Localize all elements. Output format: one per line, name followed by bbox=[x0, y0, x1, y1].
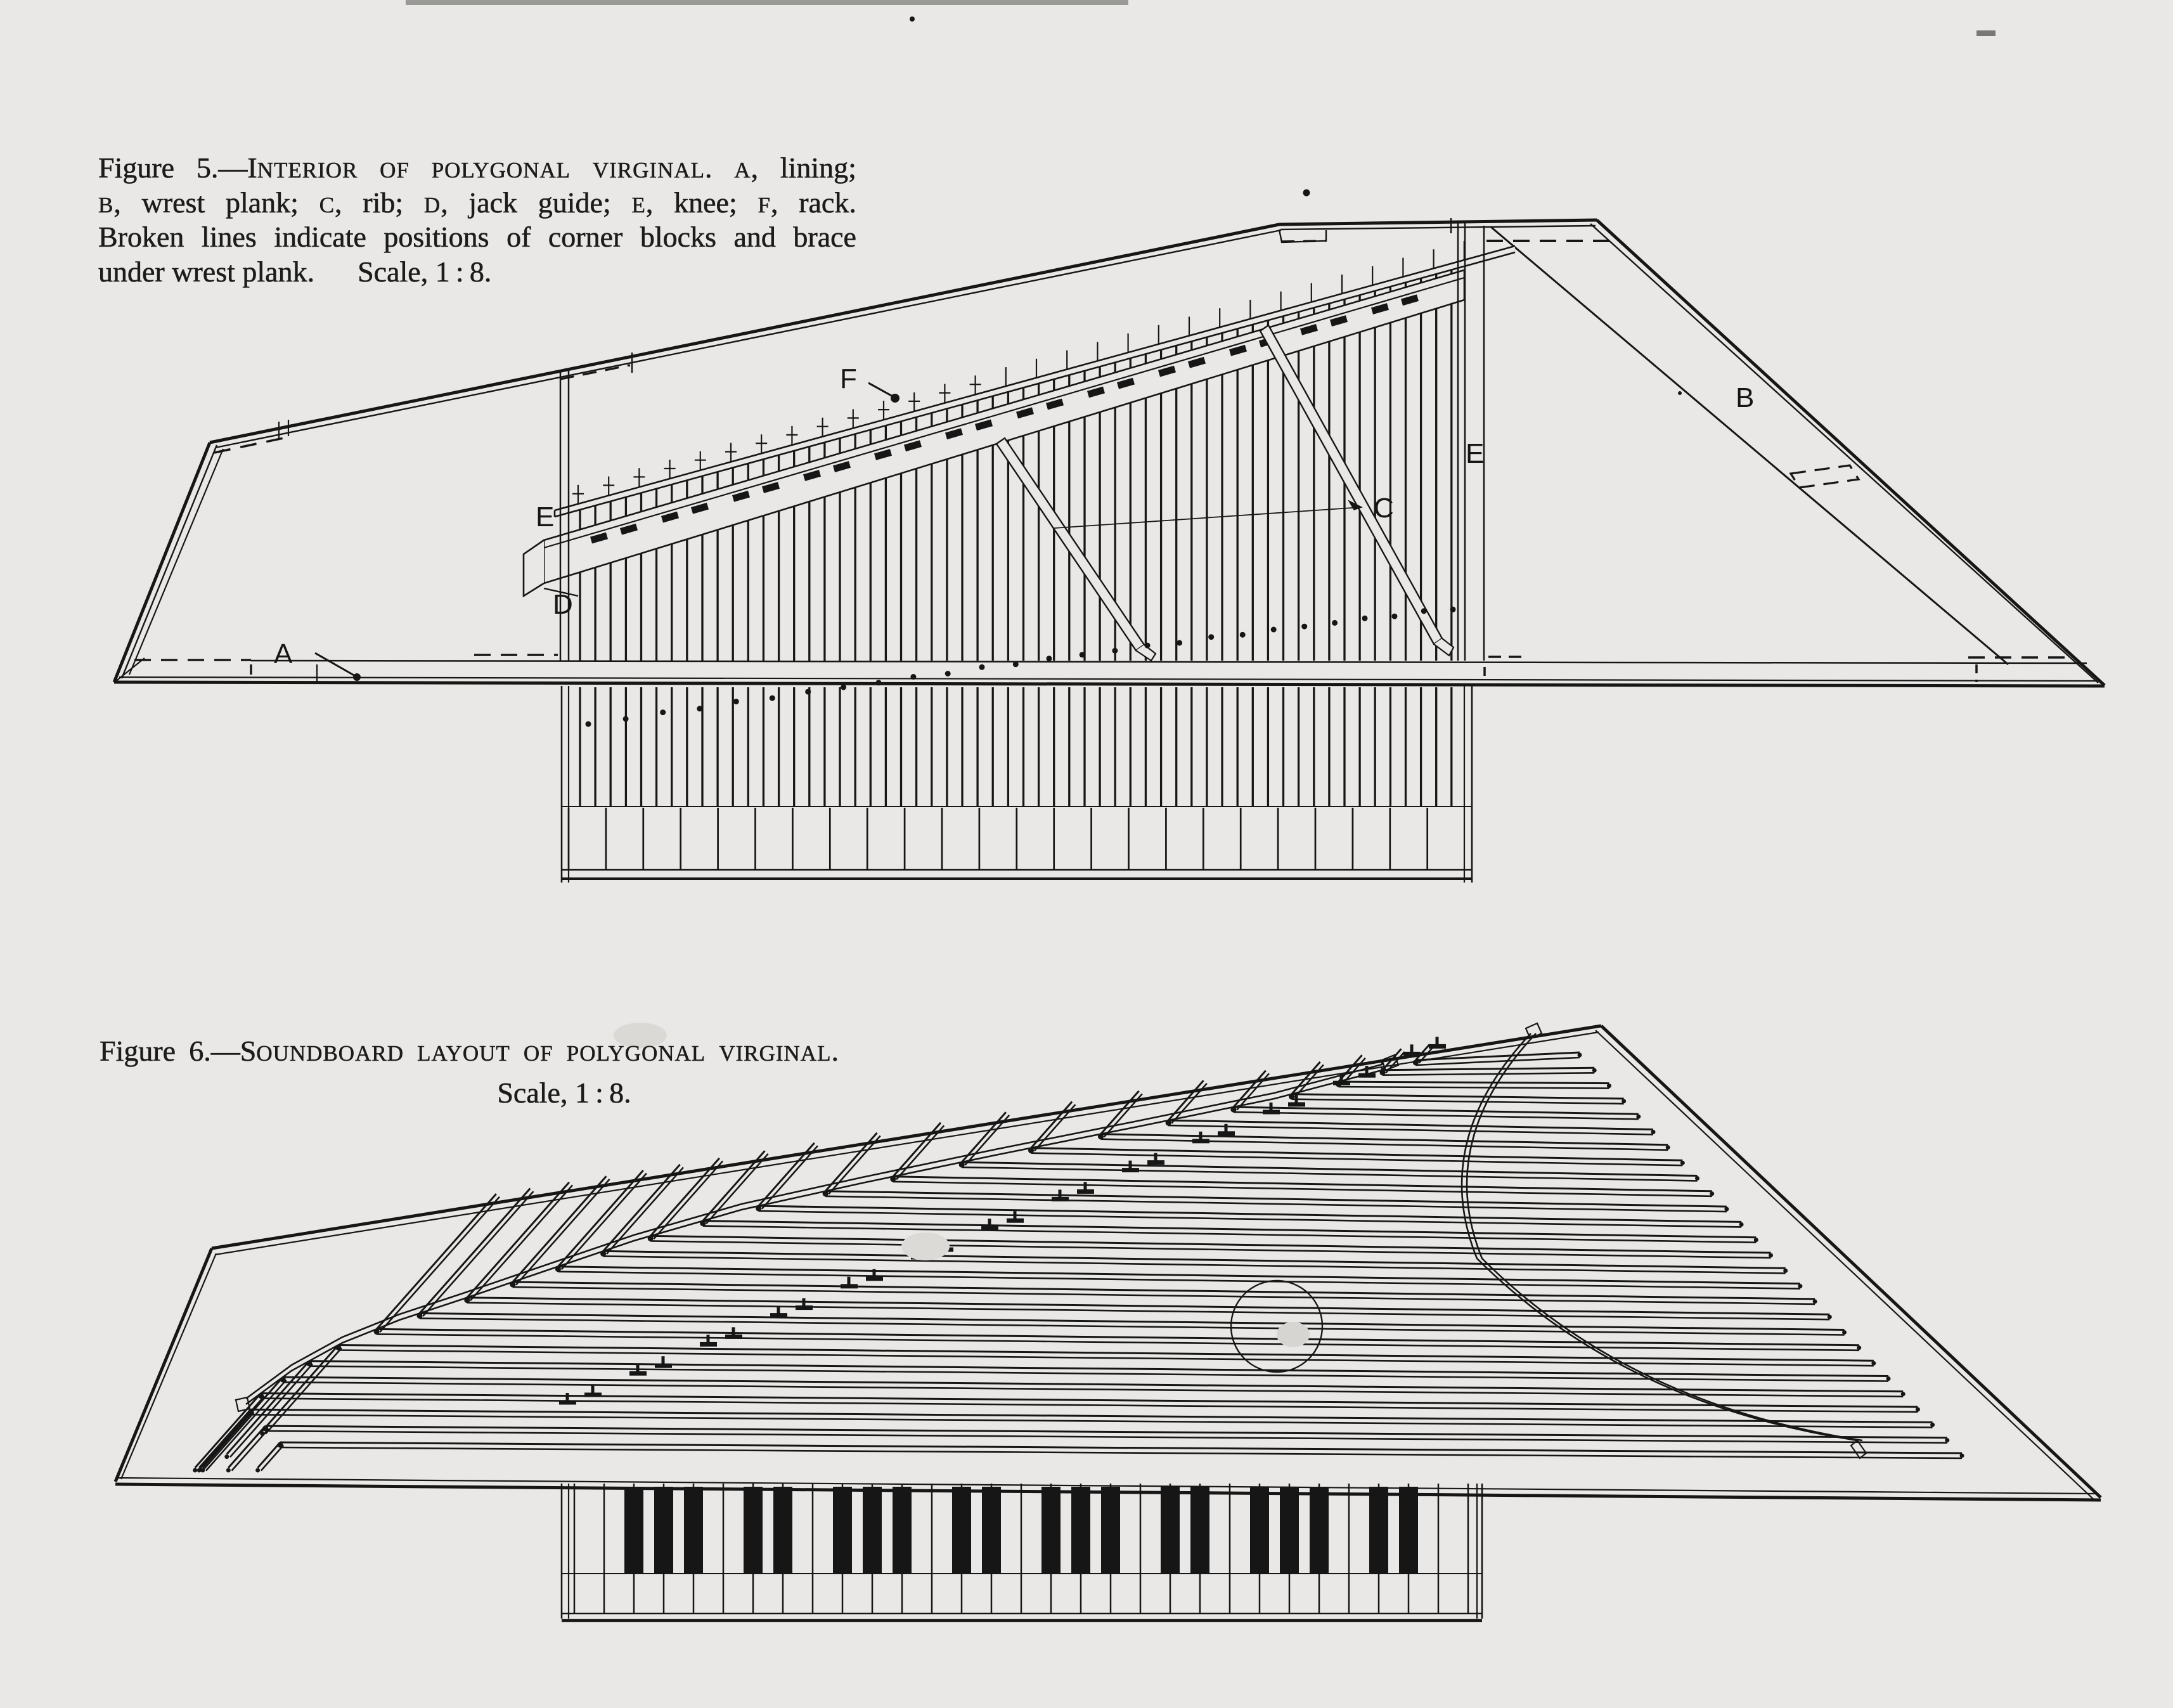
svg-text:D: D bbox=[553, 589, 573, 620]
svg-text:E: E bbox=[536, 501, 554, 533]
svg-text:E: E bbox=[1466, 438, 1484, 469]
svg-text:C: C bbox=[1374, 493, 1394, 524]
svg-text:F: F bbox=[840, 363, 857, 394]
svg-text:A: A bbox=[274, 638, 293, 670]
svg-text:B: B bbox=[1736, 382, 1754, 413]
